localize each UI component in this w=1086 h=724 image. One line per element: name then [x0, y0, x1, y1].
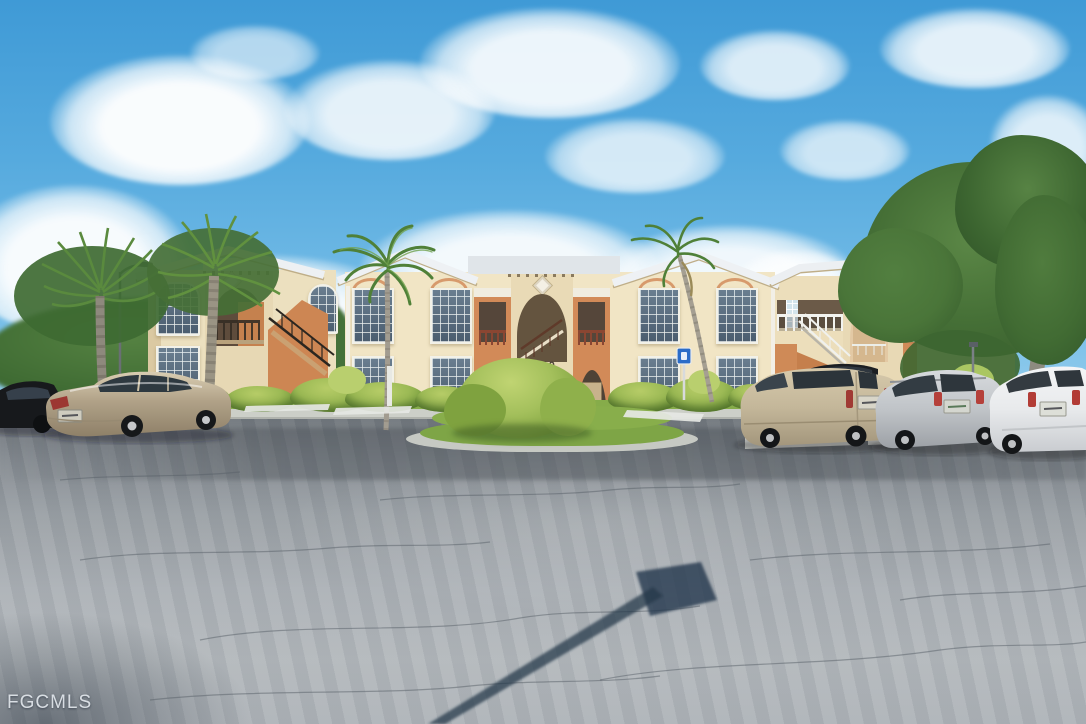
parking-stripes — [244, 404, 704, 422]
curved-palm — [632, 218, 718, 402]
photo-scene: 4110 — [0, 0, 1086, 724]
handicap-parking-sign — [677, 348, 691, 400]
bollard — [387, 366, 392, 406]
asphalt-cracks — [60, 472, 1086, 700]
royal-palm — [334, 226, 434, 430]
white-suv — [988, 366, 1086, 460]
foreground-detail — [0, 0, 1086, 724]
silver-suv — [870, 370, 1010, 455]
watermark: FGCMLS — [7, 692, 92, 714]
champagne-sedan — [42, 372, 234, 443]
sign-shadow — [428, 562, 717, 724]
